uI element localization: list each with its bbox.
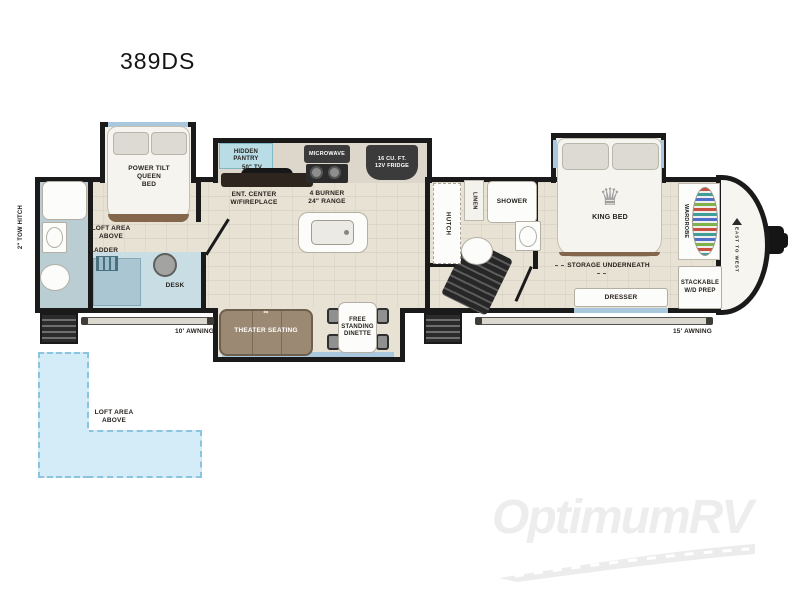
queen-pillow-right <box>151 132 187 155</box>
wall-left-end <box>35 177 40 313</box>
loft-zone-label: LOFT AREA ABOVE <box>88 409 140 425</box>
page-title: 389DS <box>120 48 195 75</box>
dinette-chair-4 <box>376 334 389 350</box>
queen-bed-footboard <box>108 214 189 222</box>
king-bed-label: KING BED <box>575 214 645 222</box>
dinette-table: FREE STANDING DINETTE <box>338 302 377 353</box>
ent-center-label: ENT. CENTER W/FIREPLACE <box>218 191 290 207</box>
awning-right-cap2 <box>706 317 713 325</box>
tow-hitch-label: 2" TOW HITCH <box>18 205 25 249</box>
desk-chair <box>153 253 177 277</box>
island-faucet <box>344 230 349 235</box>
watermark-road-icon <box>497 542 759 582</box>
hutch-label: HUTCH <box>443 212 450 236</box>
ent-center-unit <box>221 173 313 187</box>
crown-icon: ♛ <box>585 183 635 211</box>
dinette-chair-3 <box>376 308 389 324</box>
front-toilet <box>40 264 70 291</box>
microwave: MICROWAVE <box>304 145 350 163</box>
range-burner-right <box>328 166 341 179</box>
wall-hall-left <box>425 177 430 313</box>
cupholders-icon: ∞ <box>257 309 275 317</box>
wardrobe-hangers <box>692 187 718 256</box>
range-label: 4 BURNER 24" RANGE <box>304 190 350 206</box>
floorplan-page: { "page": { "title": "389DS", "watermark… <box>0 0 800 600</box>
brand-logo: EAST TO WEST <box>727 206 747 284</box>
ladder <box>96 256 118 271</box>
watermark-logo: OptimumRV <box>492 490 792 545</box>
window-bedroom-rear <box>574 308 668 313</box>
mountain-icon <box>732 218 742 225</box>
queen-bed-label: POWER TILT QUEEN BED <box>110 165 188 188</box>
awning-left-label: 10' AWNING <box>140 328 214 336</box>
entry-steps-right <box>424 313 462 344</box>
linen-closet: LINEN <box>464 180 484 221</box>
microwave-label: MICROWAVE <box>309 151 345 158</box>
brand-name: EAST TO WEST <box>734 227 739 273</box>
desk-label: DESK <box>158 282 192 290</box>
hidden-pantry-label: HIDDEN PANTRY <box>233 149 258 163</box>
wall-bedroom-stub <box>196 180 201 222</box>
wall-front-bath <box>88 177 93 313</box>
shower-label: SHOWER <box>497 198 527 206</box>
wardrobe-label: WARDROBE <box>682 204 689 238</box>
awning-left-cap2 <box>207 317 214 325</box>
mid-shower: SHOWER <box>487 181 537 223</box>
theater-seating-label: THEATER SEATING <box>219 327 313 335</box>
dinette-label: FREE STANDING DINETTE <box>341 317 374 339</box>
mid-sink-bowl <box>519 226 537 247</box>
hutch: HUTCH <box>433 183 461 264</box>
fridge: 16 CU. FT. 12V FRIDGE <box>366 145 418 180</box>
loft-zone-seam-patch <box>40 430 89 476</box>
loft-above-label-bedroom: LOFT AREA ABOVE <box>82 225 140 241</box>
awning-right-label: 15' AWNING <box>638 328 712 336</box>
awning-bar-right <box>477 317 713 325</box>
range-burner-left <box>310 166 323 179</box>
entry-steps-left <box>40 313 78 344</box>
front-sink-bowl <box>46 227 63 248</box>
stackable-wd-prep: STACKABLE W/D PREP <box>678 266 722 309</box>
king-bed-footboard <box>559 252 660 256</box>
king-pillow-left <box>562 143 609 170</box>
awning-bar-left <box>83 317 214 325</box>
queen-pillow-left <box>113 132 149 155</box>
front-shower <box>42 181 87 220</box>
stackable-label: STACKABLE W/D PREP <box>681 280 719 294</box>
awning-left-cap1 <box>81 317 88 325</box>
king-pillow-right <box>612 143 659 170</box>
wall-desk-room <box>201 252 206 313</box>
linen-label: LINEN <box>471 192 478 210</box>
mid-toilet <box>461 237 493 265</box>
dresser: DRESSER <box>574 288 668 307</box>
awning-right-cap1 <box>475 317 482 325</box>
tow-hitch-label-wrap: 2" TOW HITCH <box>14 192 30 262</box>
hitch-pin-knob <box>780 233 788 248</box>
ladder-label: LADDER <box>84 247 124 255</box>
wall-top-right <box>661 177 721 182</box>
dresser-label: DRESSER <box>605 294 638 302</box>
storage-underneath-label: STORAGE UNDERNEATH <box>545 262 657 278</box>
fridge-label: 16 CU. FT. 12V FRIDGE <box>375 156 409 169</box>
wardrobe-label-wrap: WARDROBE <box>679 187 692 256</box>
